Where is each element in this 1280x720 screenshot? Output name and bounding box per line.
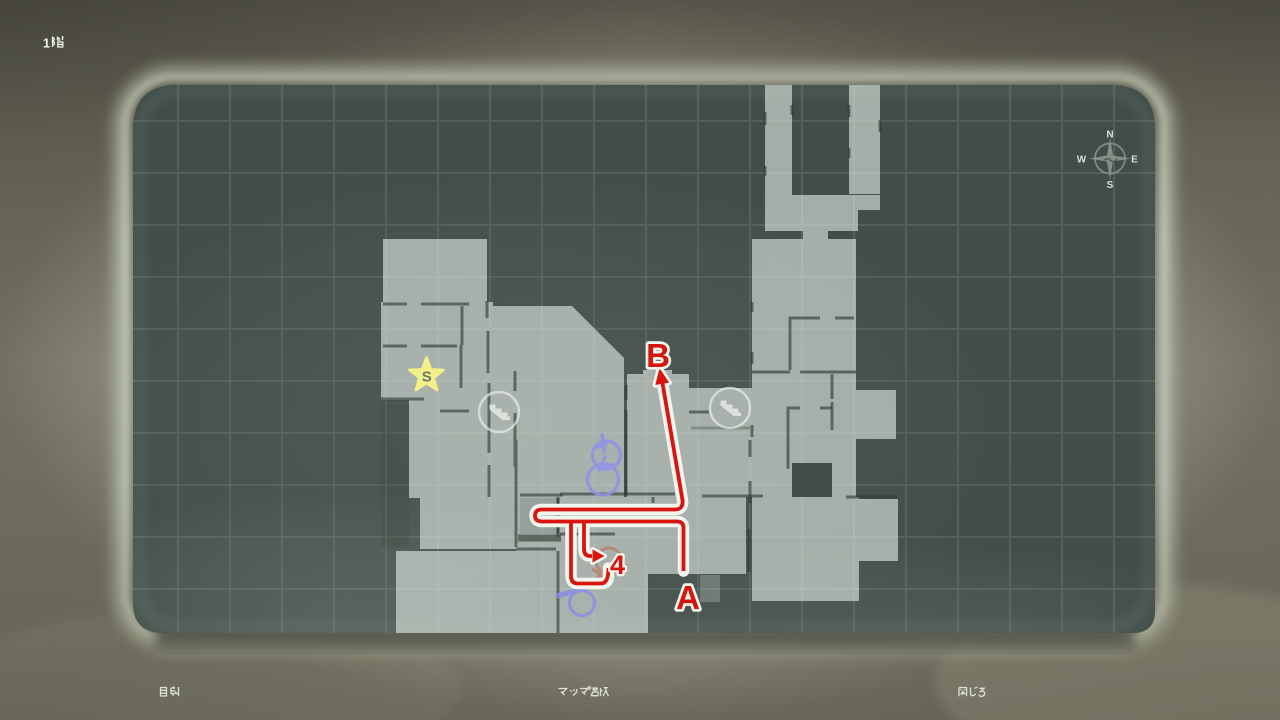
- svg-text:A: A: [676, 579, 700, 616]
- svg-text:E: E: [1131, 155, 1138, 166]
- svg-text:W: W: [1077, 155, 1087, 166]
- svg-text:S: S: [422, 369, 432, 386]
- svg-text:N: N: [1106, 130, 1113, 141]
- svg-text:1: 1: [43, 37, 50, 51]
- svg-text:4: 4: [610, 550, 625, 580]
- svg-text:S: S: [1107, 180, 1114, 191]
- svg-text:B: B: [646, 337, 670, 374]
